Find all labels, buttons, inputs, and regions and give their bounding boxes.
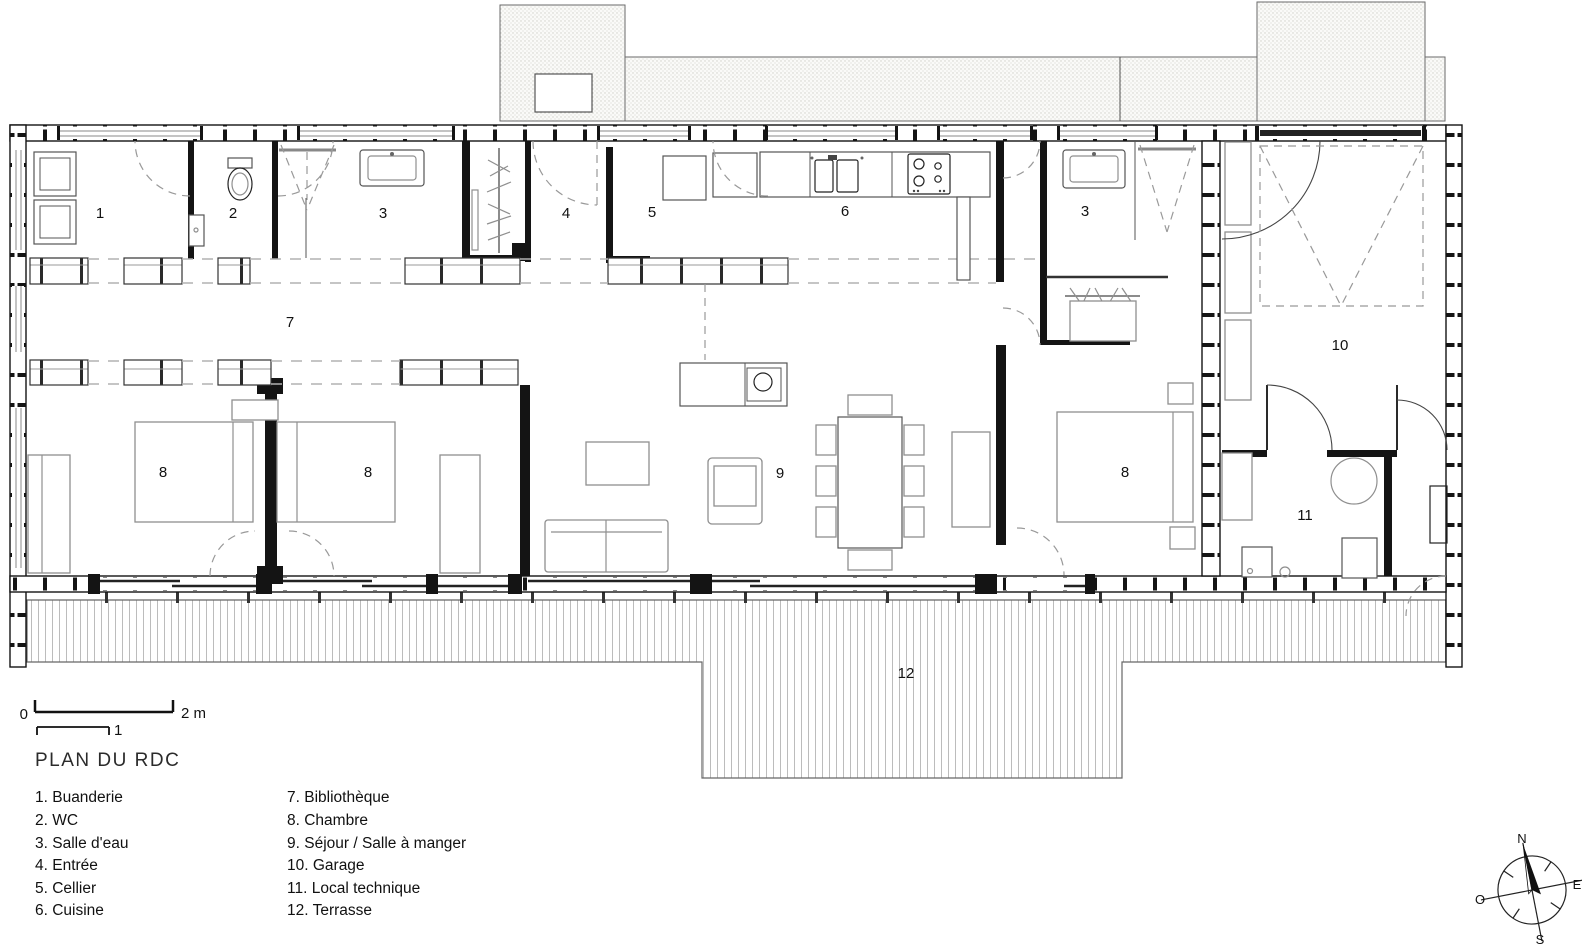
compass-rose: N E S O: [1472, 831, 1582, 946]
room-label-salle-eau-2: 3: [1081, 203, 1089, 220]
legend: 1. Buanderie 2. WC 3. Salle d'eau 4. Ent…: [35, 789, 466, 919]
kitchen-counter: [760, 152, 990, 197]
house-garage-wall: [1202, 141, 1220, 576]
local-technique: [1222, 385, 1447, 578]
room-label-chambre-1: 8: [159, 464, 167, 481]
compass-north: N: [1517, 831, 1526, 846]
scale-one: 1: [114, 722, 122, 739]
room-label-local-technique: 11: [1297, 507, 1313, 524]
bathroom2-fixtures: [1063, 145, 1196, 341]
bathroom1-fixtures: [279, 145, 424, 210]
garage: [1222, 141, 1423, 400]
legend-item-terrasse: 12. Terrasse: [287, 902, 372, 919]
compass-south: S: [1536, 932, 1545, 946]
room-label-salle-eau-1: 3: [379, 205, 387, 222]
room-label-garage: 10: [1332, 337, 1349, 354]
legend-item-sejour: 9. Séjour / Salle à manger: [287, 835, 466, 852]
plan-title: PLAN DU RDC: [35, 750, 180, 771]
legend-item-wc: 2. WC: [35, 812, 78, 829]
scale-bar: 0 2 m 1: [20, 700, 206, 739]
floorplan-page: 1 2 3 4 5 6 3 7 10 8 8 9 8 11 12 0 2 m 1…: [0, 0, 1582, 946]
deck-joist-ticks: [40, 591, 1435, 603]
fridge: [713, 153, 757, 197]
water-heater: [1331, 458, 1377, 504]
terrace-deck: [27, 591, 1446, 778]
legend-item-local-technique: 11. Local technique: [287, 880, 420, 897]
cellar-shelves: [663, 156, 706, 200]
legend-item-garage: 10. Garage: [287, 857, 365, 874]
room-label-terrasse: 12: [898, 665, 915, 682]
room-label-wc: 2: [229, 205, 237, 222]
room-label-chambre-3: 8: [1121, 464, 1129, 481]
laundry-appliances: [34, 152, 76, 244]
scale-zero: 0: [20, 706, 28, 723]
coffee-table: [586, 442, 649, 485]
room-label-sejour: 9: [776, 465, 784, 482]
legend-item-bibliotheque: 7. Bibliothèque: [287, 789, 390, 806]
legend-item-cuisine: 6. Cuisine: [35, 902, 104, 919]
room-label-entree: 4: [562, 205, 570, 222]
legend-item-salle-eau: 3. Salle d'eau: [35, 835, 128, 852]
compass-west: O: [1475, 892, 1485, 907]
room-label-buanderie: 1: [96, 205, 104, 222]
heat-pump: [1430, 486, 1447, 543]
armchair: [708, 458, 762, 524]
wc-fixtures: [189, 158, 252, 246]
compass-east: E: [1573, 877, 1582, 892]
paving-opening: [535, 74, 592, 112]
kitchen-island: [680, 363, 787, 406]
dressing-nook: [1065, 288, 1140, 341]
bedroom1: [28, 422, 253, 573]
scale-two-m: 2 m: [181, 705, 206, 722]
entry-closet: [472, 148, 511, 253]
room-label-bibliotheque: 7: [286, 314, 294, 331]
dining-set: [816, 395, 924, 570]
room-label-chambre-2: 8: [364, 464, 372, 481]
legend-item-chambre: 8. Chambre: [287, 812, 368, 829]
garage-door-swing: [1260, 146, 1423, 306]
legend-item-buanderie: 1. Buanderie: [35, 789, 123, 806]
legend-item-entree: 4. Entrée: [35, 857, 98, 874]
legend-item-cellier: 5. Cellier: [35, 880, 96, 897]
sofa: [545, 520, 668, 572]
room-label-cellier: 5: [648, 204, 656, 221]
garage-door: [1255, 126, 1426, 141]
bibliotheque-shelving: [30, 258, 1040, 385]
kitchen-return: [957, 197, 970, 280]
living-dining: [545, 363, 990, 572]
bench: [952, 432, 990, 527]
room-label-cuisine: 6: [841, 203, 849, 220]
floorplan-drawing: 1 2 3 4 5 6 3 7 10 8 8 9 8 11 12 0 2 m 1…: [0, 0, 1582, 946]
exterior-paving: [500, 2, 1445, 121]
